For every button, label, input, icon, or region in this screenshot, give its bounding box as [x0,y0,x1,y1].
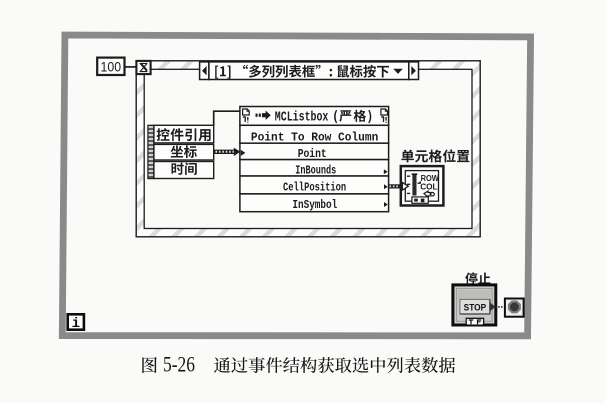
svg-text:COL: COL [420,182,437,192]
svg-text:Point To Row Column: Point To Row Column [251,130,378,144]
svg-text:100: 100 [101,59,122,75]
svg-text:STOP: STOP [464,301,487,312]
svg-text:InSymbol: InSymbol [292,198,337,212]
svg-text:Point: Point [298,147,327,161]
svg-text:MCListbox: MCListbox [275,111,329,126]
svg-text:CellPosition: CellPosition [283,181,346,195]
svg-text:InBounds: InBounds [295,163,336,177]
svg-text:5-26: 5-26 [163,352,195,377]
svg-text:i: i [72,316,80,332]
